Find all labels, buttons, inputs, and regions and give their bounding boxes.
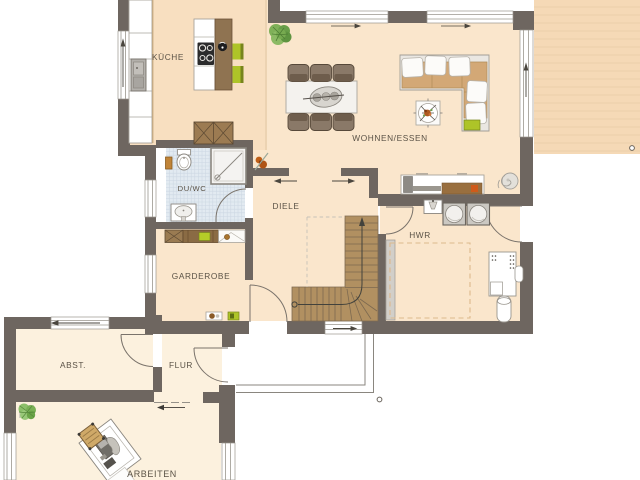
svg-text:KÜCHE: KÜCHE [152, 52, 184, 62]
svg-text:ARBEITEN: ARBEITEN [127, 469, 177, 479]
svg-text:FLUR: FLUR [169, 360, 193, 370]
svg-text:DU/WC: DU/WC [178, 184, 207, 193]
svg-text:GARDEROBE: GARDEROBE [172, 271, 230, 281]
svg-text:WOHNEN/ESSEN: WOHNEN/ESSEN [352, 133, 427, 143]
svg-text:HWR: HWR [409, 230, 431, 240]
svg-text:DIELE: DIELE [273, 201, 300, 211]
svg-text:ABST.: ABST. [60, 360, 86, 370]
